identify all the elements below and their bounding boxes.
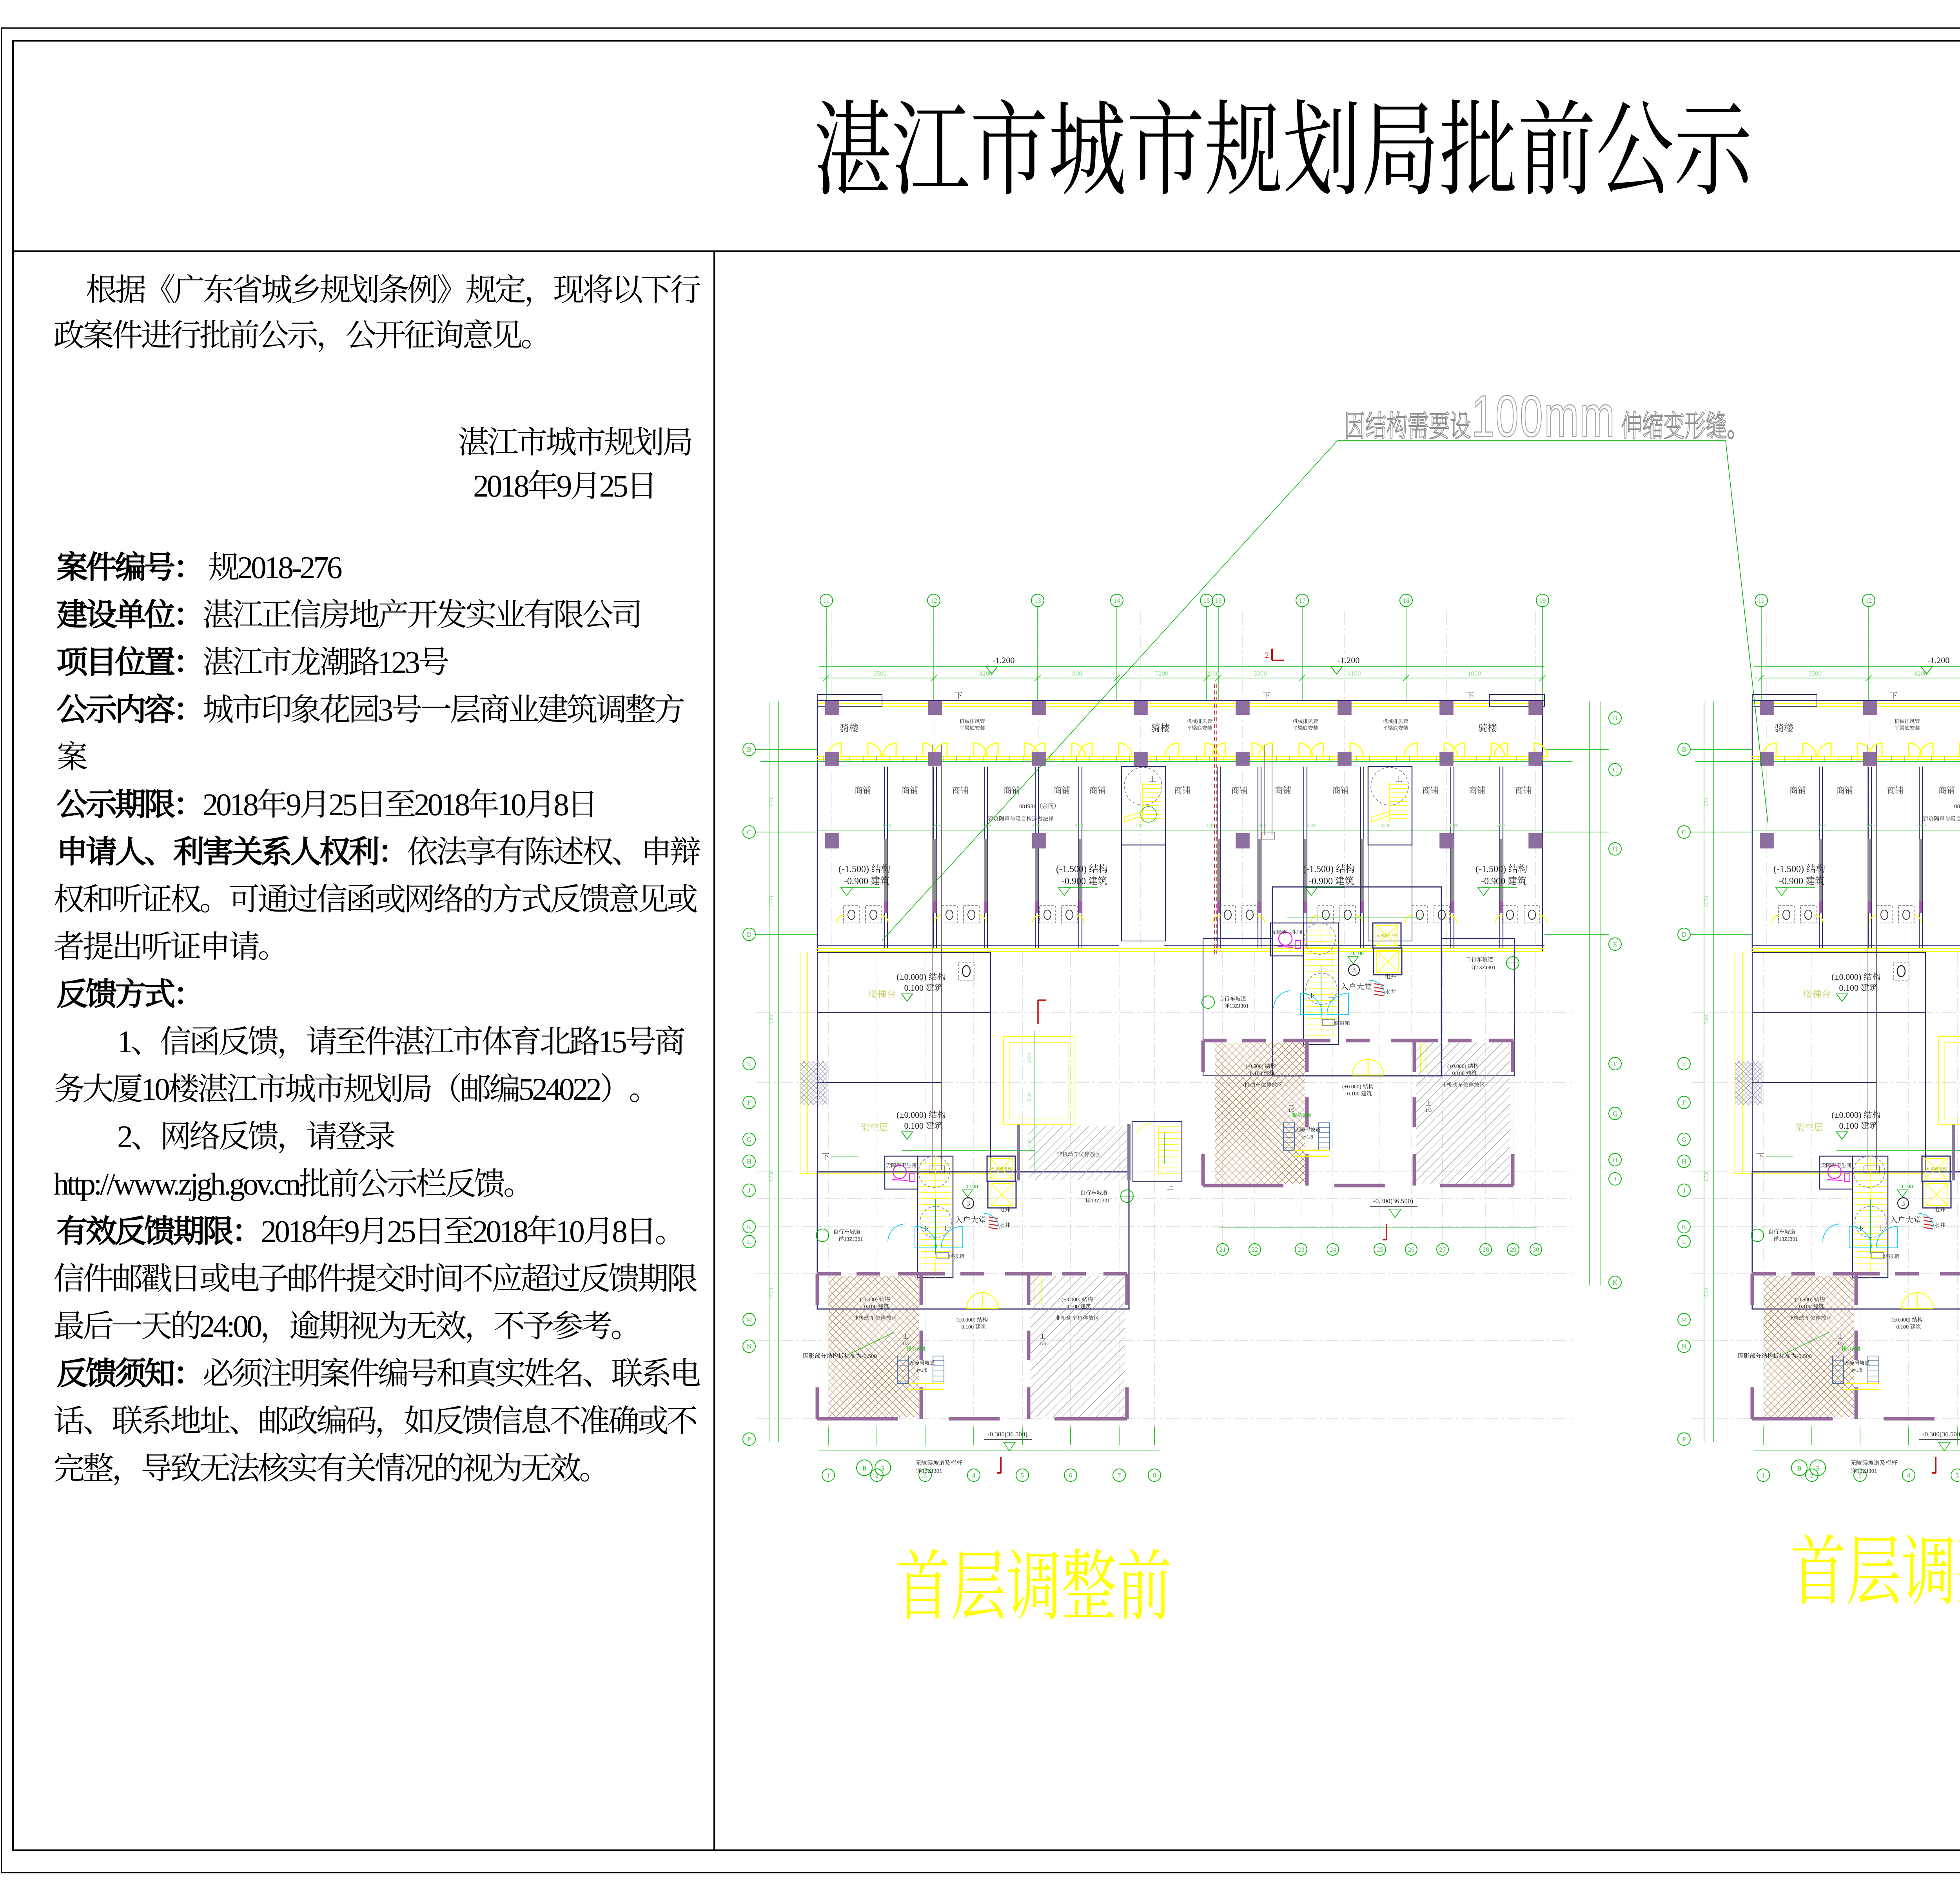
svg-text:5200: 5200 [767,1013,775,1024]
svg-text:2350: 2350 [767,896,775,907]
svg-text:4200: 4200 [1449,822,1459,829]
svg-text:(±0.000) 结构: (±0.000) 结构 [1447,1062,1479,1070]
svg-text:8750: 8750 [767,1170,775,1181]
svg-text:3: 3 [967,1198,970,1208]
svg-text:商铺: 商铺 [1515,784,1532,796]
svg-text:B: B [1682,744,1686,754]
svg-text:28: 28 [1483,1244,1489,1254]
svg-text:详13ZJ301: 详13ZJ301 [1851,1467,1877,1475]
svg-text:自行车坡道: 自行车坡道 [1080,1189,1107,1197]
svg-text:无障碍坡道: 无障碍坡道 [909,1359,935,1366]
svg-text:非机动车位停放区: 非机动车位停放区 [1788,1314,1832,1322]
svg-text:无障碍卫生间: 无障碍卫生间 [1821,1161,1851,1169]
svg-text:i=1/8: i=1/8 [1302,1133,1313,1140]
svg-text:0.100: 0.100 [965,1182,978,1190]
svg-text:27: 27 [1439,1244,1446,1254]
svg-text:水井: 水井 [1934,1221,1945,1229]
svg-text:(±0.000) 结构: (±0.000) 结构 [897,970,946,983]
svg-text:水井: 水井 [1385,988,1396,996]
svg-text:上: 上 [1167,1182,1173,1191]
svg-text:2000: 2000 [1206,668,1219,678]
svg-text:上: 上 [942,1224,948,1233]
svg-text:i=1/8: i=1/8 [916,1366,927,1373]
svg-text:(-0.500) 结构: (-0.500) 结构 [1795,1295,1825,1303]
svg-text:(±0.000) 结构: (±0.000) 结构 [1342,1082,1374,1090]
svg-text:入户大堂: 入户大堂 [1890,1214,1921,1225]
svg-text:5: 5 [881,1463,884,1472]
svg-text:上: 上 [1328,991,1334,999]
svg-text:商铺: 商铺 [1275,784,1291,796]
svg-text:G: G [747,1134,751,1144]
svg-text:11: 11 [1758,595,1764,605]
svg-text:-0.900 建筑: -0.900 建筑 [844,873,889,887]
svg-text:上: 上 [1149,774,1156,784]
svg-text:0.100 建筑: 0.100 建筑 [904,1119,943,1131]
svg-text:0.100 建筑: 0.100 建筑 [1067,1302,1091,1310]
svg-text:商铺: 商铺 [1089,784,1106,796]
svg-text:900: 900 [1072,668,1082,678]
svg-text:12: 12 [931,595,937,605]
svg-text:自行车坡道: 自行车坡道 [1466,955,1493,963]
svg-text:商铺: 商铺 [855,784,871,796]
svg-text:商铺: 商铺 [1004,784,1020,796]
svg-text:1500: 1500 [1025,1139,1033,1149]
svg-text:水井: 水井 [999,1221,1010,1229]
svg-text:平梁底安装: 平梁底安装 [1894,724,1920,731]
svg-text:13: 13 [1034,595,1041,605]
svg-text:4200: 4200 [1032,822,1042,829]
svg-text:非机动车位停放区: 非机动车位停放区 [1057,1150,1101,1158]
svg-text:无障碍卫生间: 无障碍卫生间 [1272,928,1302,936]
svg-text:L: L [1682,1236,1686,1246]
svg-text:入户大堂: 入户大堂 [1341,981,1372,992]
svg-text:G: G [1613,1108,1617,1118]
svg-text:22: 22 [1252,1244,1258,1254]
svg-text:-0.900 建筑: -0.900 建筑 [1062,873,1107,887]
svg-text:4200: 4200 [882,822,891,829]
svg-text:下: 下 [955,689,962,701]
svg-text:8: 8 [1153,1470,1156,1479]
svg-text:(±0.000) 结构: (±0.000) 结构 [1831,1108,1881,1120]
svg-text:K: K [1613,1277,1618,1287]
svg-text:自行车坡道: 自行车坡道 [833,1228,860,1236]
svg-text:提示盲道: 提示盲道 [1292,1112,1311,1119]
svg-text:5: 5 [1816,1463,1819,1472]
svg-text:1000: 1000 [1468,668,1481,678]
svg-text:D: D [1682,929,1686,939]
svg-text:信报箱: 信报箱 [1334,1019,1350,1026]
svg-text:0.100 建筑: 0.100 建筑 [1896,1323,1921,1331]
svg-text:电井: 电井 [1385,972,1396,980]
svg-text:骑楼: 骑楼 [840,720,858,734]
svg-text:下: 下 [1262,689,1270,701]
svg-text:J: J [1683,1185,1686,1195]
svg-text:无障碍卫生间: 无障碍卫生间 [886,1161,916,1169]
svg-text:30: 30 [1533,1244,1539,1254]
svg-text:-1.200: -1.200 [1338,654,1360,666]
svg-text:E: E [1613,939,1617,948]
svg-text:提示盲道: 提示盲道 [1842,1345,1860,1352]
svg-text:D: D [1613,843,1617,853]
svg-text:4200: 4200 [1381,822,1390,829]
svg-text:楼梯台: 楼梯台 [868,986,896,1000]
svg-text:J: J [748,1185,751,1195]
svg-text:J: J [1614,1173,1617,1183]
svg-text:详13ZJ301: 详13ZJ301 [1773,1235,1798,1243]
svg-text:4250: 4250 [1702,798,1710,809]
svg-text:4250: 4250 [767,798,775,809]
svg-text:商铺: 商铺 [1938,784,1955,796]
svg-text:上: 上 [1396,774,1403,784]
svg-text:08J931（余同）: 08J931（余同） [1019,802,1060,810]
svg-text:1: 1 [1762,1470,1765,1479]
svg-text:0.100 建筑: 0.100 建筑 [1839,1119,1878,1131]
svg-text:24: 24 [1330,1244,1337,1254]
svg-text:非机动车位停放区: 非机动车位停放区 [1441,1081,1485,1089]
svg-text:详13ZJ301: 详13ZJ301 [838,1235,863,1243]
svg-text:0.100 建筑: 0.100 建筑 [1452,1069,1477,1077]
svg-text:(-1.500) 结构: (-1.500) 结构 [1056,861,1108,875]
svg-text:17: 17 [1299,595,1306,605]
svg-text:i=1/8: i=1/8 [1851,1366,1862,1373]
svg-text:商铺: 商铺 [1887,784,1904,796]
svg-text:(-1.500) 结构: (-1.500) 结构 [838,861,890,875]
svg-text:N: N [747,1341,751,1351]
svg-text:E: E [747,1058,751,1068]
svg-text:建筑隔声与吸音构造做法详: 建筑隔声与吸音构造做法详 [988,815,1054,823]
svg-text:(±0.000) 结构: (±0.000) 结构 [897,1108,946,1120]
svg-text:1/5: 1/5 [1425,1106,1432,1113]
svg-text:14: 14 [1114,595,1121,605]
svg-text:无障碍电梯: 无障碍电梯 [991,1166,1012,1172]
svg-text:0.100 建筑: 0.100 建筑 [1799,1302,1824,1310]
svg-text:2850: 2850 [1025,1053,1033,1063]
svg-text:详13ZJ301: 详13ZJ301 [1085,1197,1110,1204]
svg-text:4500: 4500 [767,1288,775,1299]
svg-text:F: F [1682,1097,1686,1107]
svg-text:商铺: 商铺 [1469,784,1485,796]
svg-text:因影部分结构板标高为-0.500: 因影部分结构板标高为-0.500 [1738,1352,1812,1360]
svg-text:7: 7 [1118,1470,1121,1479]
svg-text:4200: 4200 [1495,822,1505,829]
svg-text:(-0.500) 结构: (-0.500) 结构 [860,1295,890,1303]
svg-text:0.100 建筑: 0.100 建筑 [962,1323,986,1331]
svg-text:16: 16 [1215,595,1222,605]
svg-text:0.100: 0.100 [1900,1182,1913,1190]
svg-text:骑楼: 骑楼 [1151,720,1170,734]
svg-text:19: 19 [1539,595,1546,605]
svg-text:4200: 4200 [1916,822,1926,829]
svg-text:无障碍坡道及栏杆: 无障碍坡道及栏杆 [915,1459,962,1467]
svg-text:(±0.000) 结构: (±0.000) 结构 [956,1316,988,1324]
svg-text:无障碍电梯: 无障碍电梯 [1926,1166,1947,1172]
svg-text:无障碍坡道及栏杆: 无障碍坡道及栏杆 [1850,1459,1897,1467]
svg-text:K: K [1682,1221,1687,1231]
svg-text:非机动车位停放区: 非机动车位停放区 [1239,1081,1283,1089]
svg-text:4: 4 [972,1470,976,1479]
svg-text:3: 3 [1902,1198,1905,1208]
svg-text:非机动车位停放区: 非机动车位停放区 [1055,1314,1099,1322]
svg-text:M: M [1681,1314,1687,1324]
svg-text:1: 1 [827,1470,830,1479]
svg-text:商铺: 商铺 [952,784,969,796]
svg-text:商铺: 商铺 [902,784,918,796]
svg-text:自行车坡道: 自行车坡道 [1768,1228,1795,1236]
svg-text:C: C [1682,827,1686,836]
svg-text:25: 25 [1377,1244,1383,1254]
svg-text:入户大堂: 入户大堂 [955,1214,986,1225]
svg-text:H: H [747,1156,751,1166]
svg-text:0.100 建筑: 0.100 建筑 [1250,1069,1275,1077]
svg-text:上: 上 [1877,1224,1883,1233]
svg-text:29: 29 [1510,1244,1517,1254]
svg-text:0.100: 0.100 [1351,949,1364,957]
svg-text:5: 5 [1956,1470,1959,1479]
svg-text:商铺: 商铺 [1174,784,1191,796]
svg-text:F: F [747,1097,751,1107]
svg-text:信报箱: 信报箱 [1884,1252,1899,1260]
svg-text:详13ZJ301: 详13ZJ301 [1224,1002,1249,1010]
svg-text:(±0.000) 结构: (±0.000) 结构 [1891,1316,1923,1324]
svg-text:下: 下 [1889,689,1897,701]
svg-text:7200: 7200 [1155,668,1169,678]
svg-text:0.100 建筑: 0.100 建筑 [904,981,943,994]
svg-text:0.100 建筑: 0.100 建筑 [1347,1090,1372,1097]
svg-text:架空层: 架空层 [1795,1120,1823,1133]
svg-text:-0.300(36.500): -0.300(36.500) [1373,1195,1413,1205]
svg-text:2350: 2350 [1702,896,1710,907]
svg-text:B: B [1797,1463,1802,1472]
svg-text:15: 15 [1203,595,1210,605]
svg-text:C: C [747,827,751,836]
svg-text:K: K [747,1221,752,1231]
svg-text:E: E [1682,1058,1686,1068]
svg-text:商铺: 商铺 [1332,784,1349,796]
svg-text:电井: 电井 [1934,1206,1945,1213]
svg-text:-0.300(36.500): -0.300(36.500) [1922,1429,1960,1438]
svg-text:3500: 3500 [873,668,887,678]
svg-text:4500: 4500 [1702,1288,1710,1299]
svg-text:骑楼: 骑楼 [1775,720,1793,734]
svg-text:M: M [746,1314,752,1324]
svg-text:电井: 电井 [999,1206,1010,1213]
svg-text:3300: 3300 [1025,1092,1033,1102]
svg-text:(±0.000) 结构: (±0.000) 结构 [1062,1295,1093,1303]
svg-text:F: F [1613,1058,1617,1068]
svg-text:(-1.500) 结构: (-1.500) 结构 [1773,861,1825,875]
svg-text:-0.900 建筑: -0.900 建筑 [1308,873,1354,887]
svg-text:21: 21 [1220,1244,1226,1254]
svg-text:平梁底安装: 平梁底安装 [1383,724,1408,731]
svg-text:1/5: 1/5 [1040,1339,1046,1347]
svg-text:D: D [747,929,751,939]
svg-text:6: 6 [1069,1470,1073,1479]
svg-text:11: 11 [823,595,829,605]
svg-text:3500: 3500 [1808,668,1822,678]
svg-text:商铺: 商铺 [1231,784,1248,796]
svg-text:(-1.500) 结构: (-1.500) 结构 [1303,861,1355,875]
svg-text:-0.900 建筑: -0.900 建筑 [1481,873,1526,887]
svg-text:无障碍坡道: 无障碍坡道 [1844,1359,1869,1366]
svg-text:1/5: 1/5 [1837,1339,1844,1347]
svg-text:5200: 5200 [1702,1013,1710,1024]
svg-text:1/5: 1/5 [1288,1106,1295,1113]
svg-text:-0.900 建筑: -0.900 建筑 [1779,873,1824,887]
svg-text:P: P [747,1434,751,1443]
svg-text:下: 下 [1466,689,1474,701]
svg-text:楼梯台: 楼梯台 [1803,986,1831,1000]
svg-text:4100: 4100 [1348,668,1361,678]
svg-text:L: L [747,1236,751,1246]
svg-text:B: B [1613,713,1617,722]
svg-text:(-1.500) 结构: (-1.500) 结构 [1475,861,1527,875]
svg-text:(±0.000) 结构: (±0.000) 结构 [1831,970,1881,983]
svg-text:架空层: 架空层 [860,1120,888,1133]
svg-text:信报箱: 信报箱 [949,1252,964,1260]
svg-text:2: 2 [1265,649,1269,660]
svg-text:08J931（余同）: 08J931（余同） [1954,802,1960,810]
svg-text:23: 23 [1298,1244,1305,1254]
svg-text:建筑隔声与吸音构造做法详: 建筑隔声与吸音构造做法详 [1923,815,1960,823]
svg-text:平梁底安装: 平梁底安装 [959,724,985,731]
svg-text:商铺: 商铺 [1422,784,1439,796]
svg-text:4: 4 [1907,1470,1911,1479]
svg-text:B: B [862,1463,867,1472]
svg-text:N: N [1682,1341,1686,1351]
svg-text:4200: 4200 [1307,822,1317,829]
svg-text:-0.300(36.500): -0.300(36.500) [987,1429,1027,1438]
svg-text:26: 26 [1408,1244,1415,1254]
svg-text:P: P [1682,1434,1686,1443]
svg-text:详13ZJ301: 详13ZJ301 [916,1467,942,1475]
svg-text:下: 下 [821,1150,829,1162]
svg-text:下: 下 [1756,1150,1764,1162]
svg-text:详13ZJ301: 详13ZJ301 [1471,963,1496,971]
svg-text:8750: 8750 [1702,1170,1710,1181]
svg-text:(-0.500) 结构: (-0.500) 结构 [1246,1062,1276,1070]
svg-text:因影部分结构板标高为-0.500: 因影部分结构板标高为-0.500 [803,1352,877,1360]
svg-text:H: H [1613,1154,1617,1164]
svg-text:1/5: 1/5 [902,1339,909,1347]
svg-text:骑楼: 骑楼 [1478,720,1497,734]
svg-text:无障碍电梯: 无障碍电梯 [1376,932,1398,939]
svg-text:C: C [1613,764,1617,774]
svg-text:0.100 建筑: 0.100 建筑 [1839,981,1878,994]
svg-text:18: 18 [1403,595,1410,605]
svg-text:3: 3 [1352,965,1356,975]
svg-text:B: B [747,744,751,754]
svg-text:平梁底安装: 平梁底安装 [1292,724,1318,731]
svg-text:自行车坡道: 自行车坡道 [1219,995,1246,1003]
svg-text:非机动车位停放区: 非机动车位停放区 [853,1314,897,1322]
svg-text:-1.200: -1.200 [1927,654,1950,666]
svg-text:4200: 4200 [1817,822,1826,829]
svg-text:提示盲道: 提示盲道 [907,1345,926,1352]
svg-text:3300: 3300 [1254,668,1267,678]
svg-text:5: 5 [1021,1470,1024,1479]
svg-text:4200: 4200 [1135,822,1145,829]
svg-text:G: G [1682,1134,1686,1144]
svg-text:12: 12 [1866,595,1872,605]
svg-text:无障碍坡道: 无障碍坡道 [1295,1126,1320,1133]
svg-text:商铺: 商铺 [1837,784,1853,796]
svg-text:4200: 4200 [1075,822,1085,829]
svg-text:0.100 建筑: 0.100 建筑 [864,1302,889,1310]
svg-text:商铺: 商铺 [1789,784,1806,796]
svg-text:-1.200: -1.200 [993,654,1015,666]
svg-text:平梁底安装: 平梁底安装 [1187,724,1212,731]
svg-text:H: H [1682,1156,1686,1166]
svg-text:商铺: 商铺 [1054,784,1070,796]
